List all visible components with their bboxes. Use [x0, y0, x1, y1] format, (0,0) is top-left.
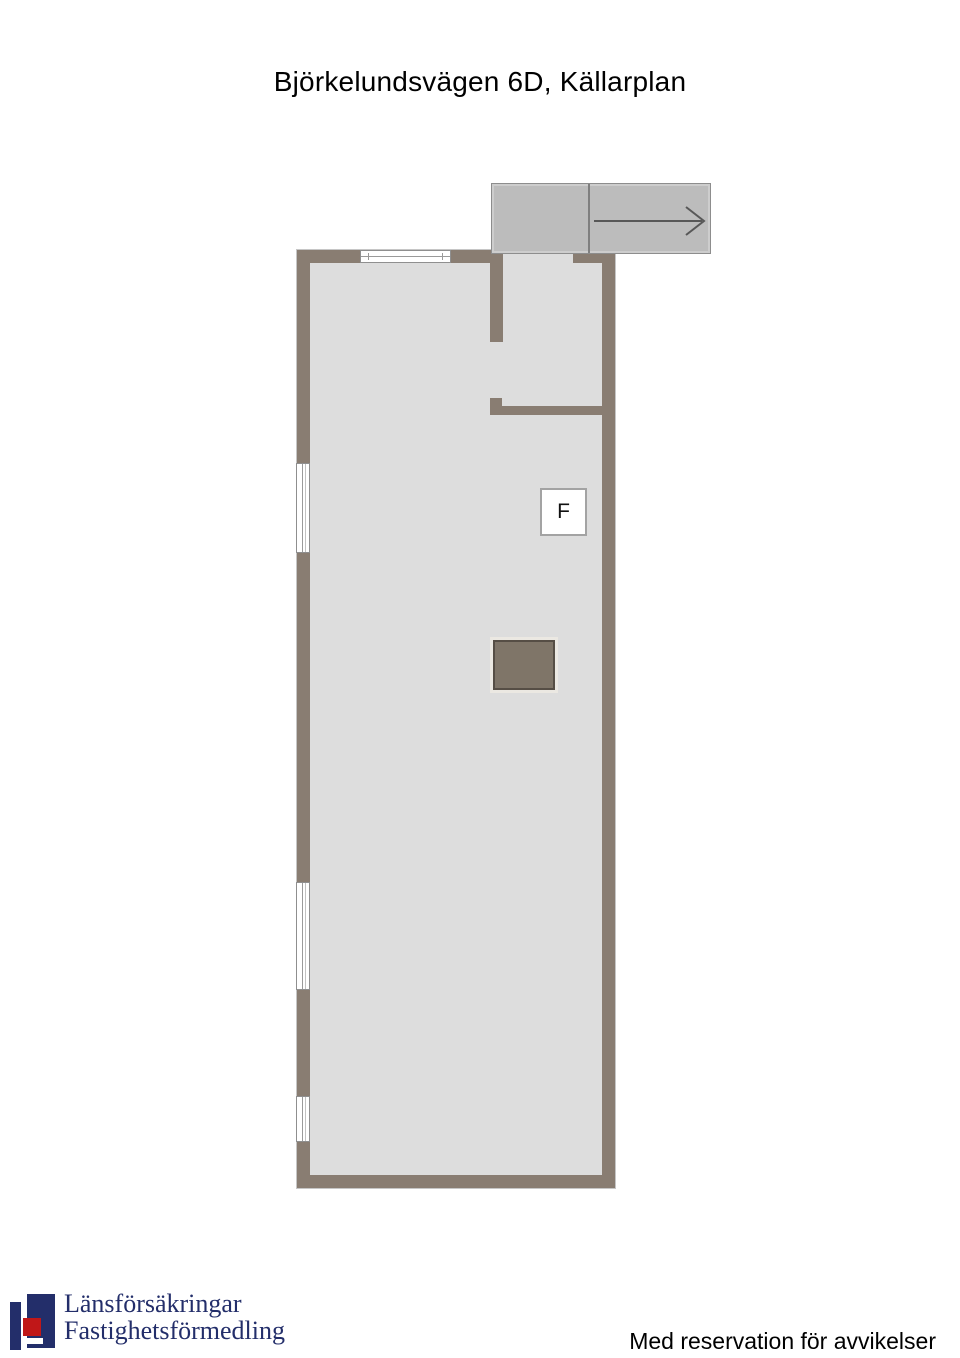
interior-wall-nub	[490, 398, 502, 415]
window-mullion	[302, 883, 303, 989]
window-mullion	[305, 464, 306, 552]
window-tick	[442, 253, 443, 260]
staircase	[491, 183, 711, 254]
page-title: Björkelundsvägen 6D, Källarplan	[0, 66, 960, 98]
lansforsakringar-logo-icon	[10, 1294, 56, 1350]
floor-plan: F	[297, 250, 615, 1188]
brand-name-line1: Länsförsäkringar	[64, 1290, 285, 1317]
window-mullion	[305, 883, 306, 989]
interior-wall-horizontal	[490, 406, 602, 415]
window-mullion	[302, 1097, 303, 1141]
staircase-step-divider	[588, 184, 590, 253]
freezer-marker: F	[540, 488, 587, 536]
basement-floor-area	[310, 263, 602, 1175]
window-left-upper	[296, 463, 310, 553]
window-left-lower	[296, 1096, 310, 1142]
brand-name: Länsförsäkringar Fastighetsförmedling	[64, 1290, 285, 1344]
window-left-middle	[296, 882, 310, 990]
brand-name-line2: Fastighetsförmedling	[64, 1317, 285, 1344]
window-mullion	[302, 464, 303, 552]
window-mullion	[305, 1097, 306, 1141]
stair-direction-arrow-icon	[592, 184, 710, 253]
window-top	[360, 250, 451, 263]
window-mullion	[361, 256, 450, 257]
window-tick	[368, 253, 369, 260]
disclaimer-text: Med reservation för avvikelser	[629, 1328, 936, 1355]
chimney-shaft	[493, 640, 555, 690]
interior-wall-stub	[490, 263, 503, 342]
